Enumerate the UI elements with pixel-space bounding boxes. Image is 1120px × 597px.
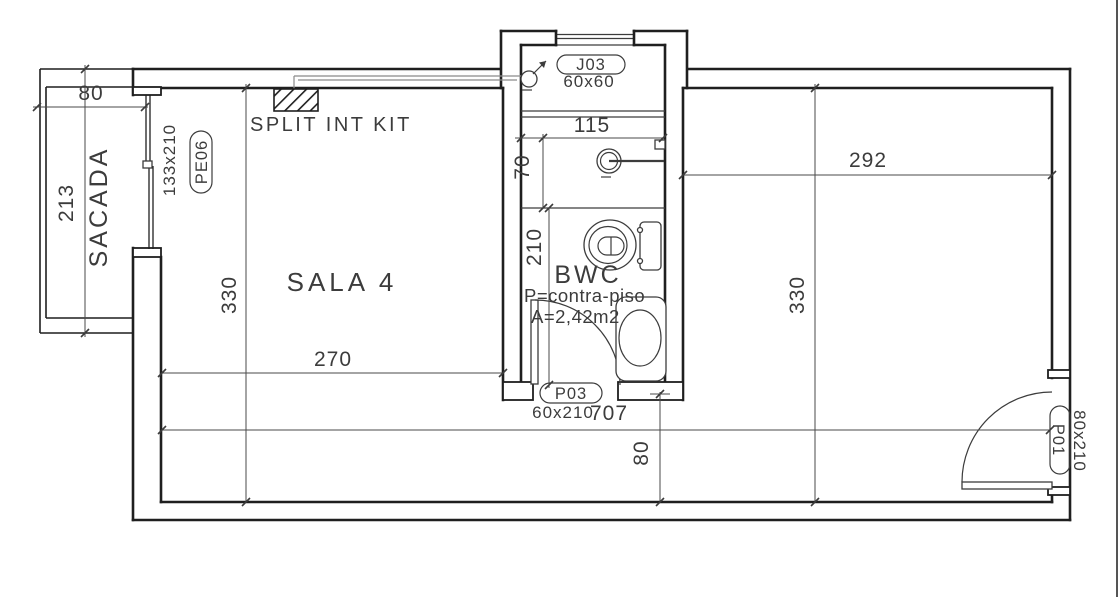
toilet-hinge xyxy=(638,259,643,264)
dim-sacada-depth: 213 xyxy=(55,184,78,222)
door-frame-top xyxy=(1048,370,1070,378)
tag-p03: P03 xyxy=(555,385,587,403)
dim-right-width: 292 xyxy=(849,149,887,172)
bwc-south-wall-right xyxy=(618,382,683,400)
toilet-tank xyxy=(640,222,661,270)
door-leaf xyxy=(962,482,1052,489)
door-frame-bottom xyxy=(133,248,161,257)
dimension-labels: 80 213 330 270 115 70 210 330 292 707 80 xyxy=(55,82,887,466)
size-j03: 60x60 xyxy=(563,72,614,91)
door-swing-arc xyxy=(962,392,1052,482)
dim-sala-width: 270 xyxy=(314,348,352,371)
room-label-sacada: SACADA xyxy=(85,147,113,268)
dim-bwc-width: 115 xyxy=(574,114,610,137)
size-p03: 60x210 xyxy=(532,403,594,422)
tag-p01: P01 xyxy=(1049,424,1067,456)
shower-symbol xyxy=(597,140,665,177)
dim-total-width: 707 xyxy=(590,402,628,425)
size-pe06: 133x210 xyxy=(160,124,179,196)
bwc-area-note: A=2,42m2 xyxy=(531,306,620,327)
floor-plan-canvas: 80 213 330 270 115 70 210 330 292 707 80… xyxy=(0,0,1120,597)
dim-sala-depth-left: 330 xyxy=(218,276,241,314)
dim-sacada-width: 80 xyxy=(78,82,103,105)
window-glazing xyxy=(556,31,634,45)
dim-shower-depth: 70 xyxy=(511,154,534,179)
dim-room-depth-right: 330 xyxy=(786,276,809,314)
room-label-sala: SALA 4 xyxy=(287,267,398,297)
split-unit-hatch xyxy=(274,89,318,111)
split-unit-label: SPLIT INT KIT xyxy=(250,114,412,136)
bwc-south-wall-left xyxy=(503,382,533,400)
drain-point-symbol xyxy=(521,61,546,90)
dim-passage-depth: 80 xyxy=(630,440,653,465)
door-frame-top xyxy=(133,87,161,95)
dim-bwc-depth: 210 xyxy=(523,228,546,266)
sink xyxy=(616,297,666,381)
size-p01: 80x210 xyxy=(1070,410,1089,472)
door-meeting-stile xyxy=(143,161,152,168)
toilet-hinge xyxy=(638,228,643,233)
tag-pe06: PE06 xyxy=(193,140,211,184)
bwc-floor-note: P=contra-piso xyxy=(524,285,645,306)
balcony-door-pe06 xyxy=(133,87,161,257)
